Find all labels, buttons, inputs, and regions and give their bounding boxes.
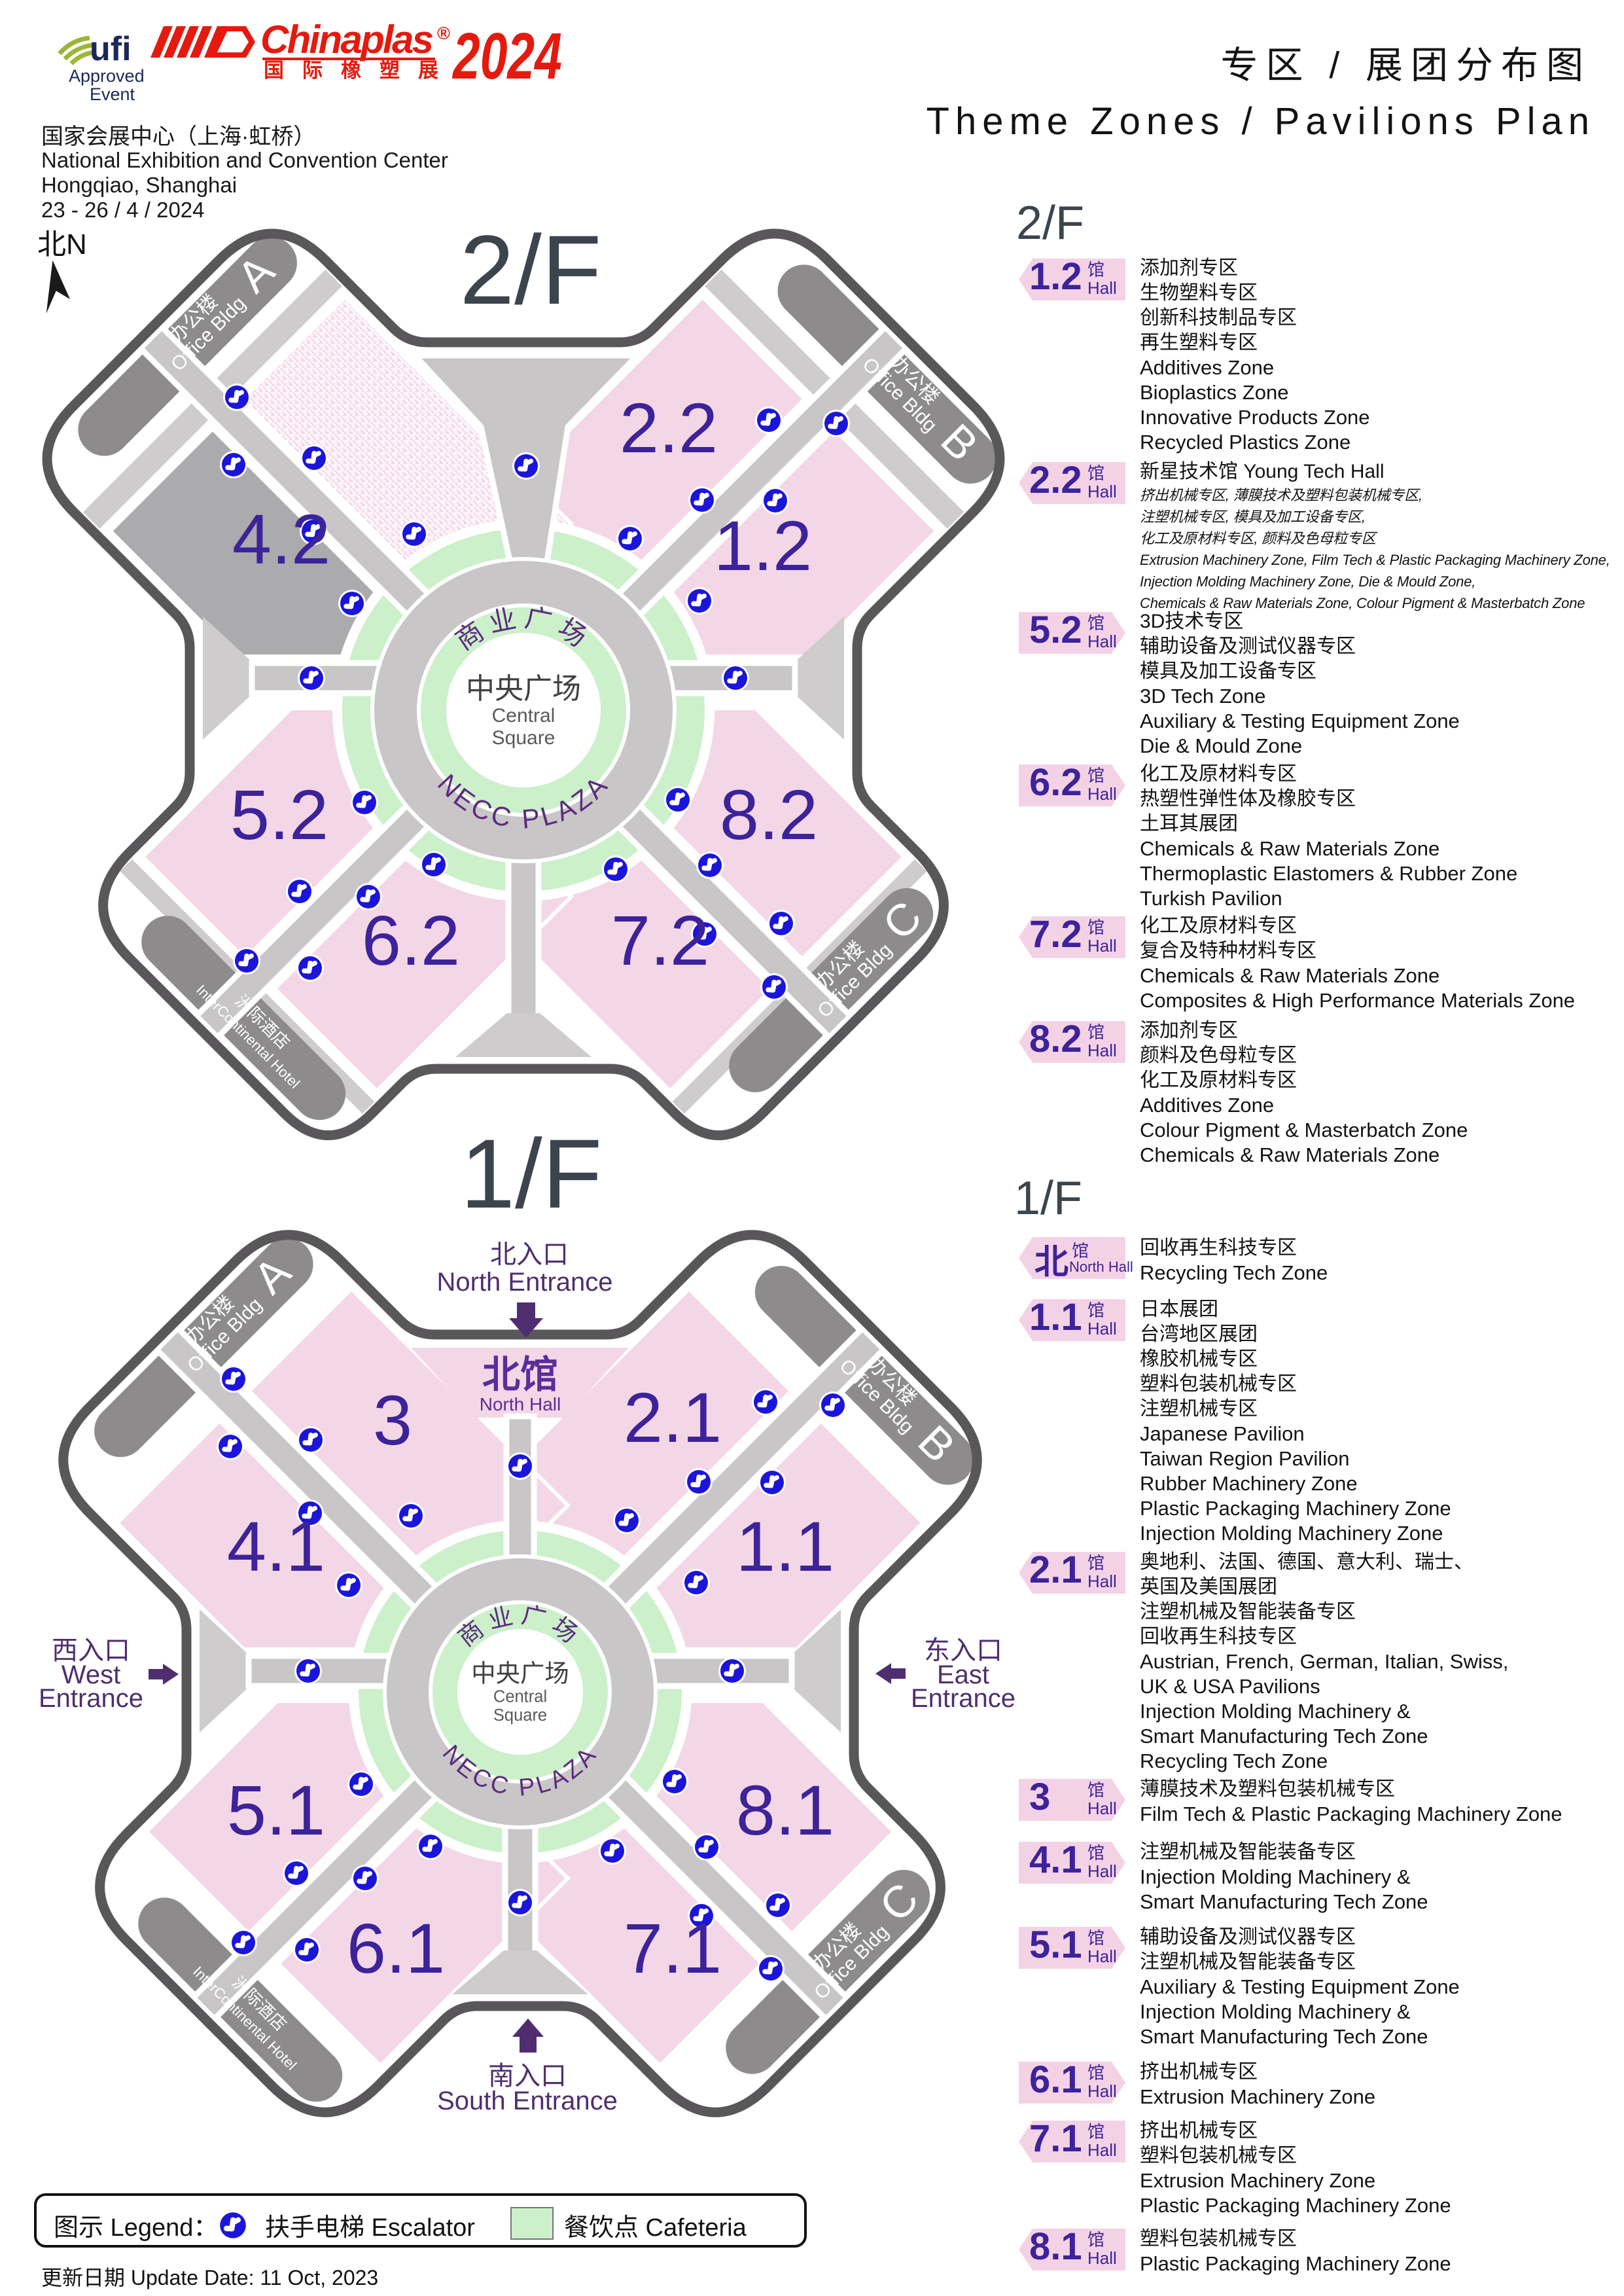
svg-text:8.1: 8.1 [736,1770,834,1850]
svg-text:2/F: 2/F [460,215,602,325]
svg-text:Square: Square [492,727,556,749]
svg-text:北入口: 北入口 [490,1240,569,1269]
svg-text:Central: Central [492,705,556,726]
svg-text:Entrance: Entrance [911,1684,1015,1713]
svg-text:Central: Central [493,1687,547,1706]
svg-text:South Entrance: South Entrance [437,2087,618,2115]
svg-text:北馆: 北馆 [482,1354,558,1396]
svg-text:8.2: 8.2 [720,775,818,854]
svg-text:中央广场: 中央广场 [466,673,581,705]
svg-text:Square: Square [493,1706,547,1725]
svg-text:4.2: 4.2 [232,499,330,579]
svg-text:North Entrance: North Entrance [436,1268,612,1297]
svg-text:5.2: 5.2 [230,775,328,854]
svg-text:6.2: 6.2 [362,901,460,980]
svg-text:Entrance: Entrance [39,1684,143,1713]
svg-text:6.1: 6.1 [347,1909,445,1988]
svg-text:7.2: 7.2 [611,901,709,980]
svg-text:5.1: 5.1 [227,1770,325,1850]
svg-text:1/F: 1/F [461,1119,603,1229]
svg-text:North Hall: North Hall [480,1394,561,1414]
svg-text:2.1: 2.1 [624,1378,722,1457]
svg-text:7.1: 7.1 [624,1909,722,1988]
svg-text:1.2: 1.2 [714,506,812,585]
svg-text:中央广场: 中央广场 [471,1660,569,1687]
svg-text:4.1: 4.1 [227,1507,325,1586]
svg-text:1.1: 1.1 [736,1507,834,1586]
svg-text:3: 3 [373,1380,412,1460]
svg-text:2.2: 2.2 [620,388,718,467]
